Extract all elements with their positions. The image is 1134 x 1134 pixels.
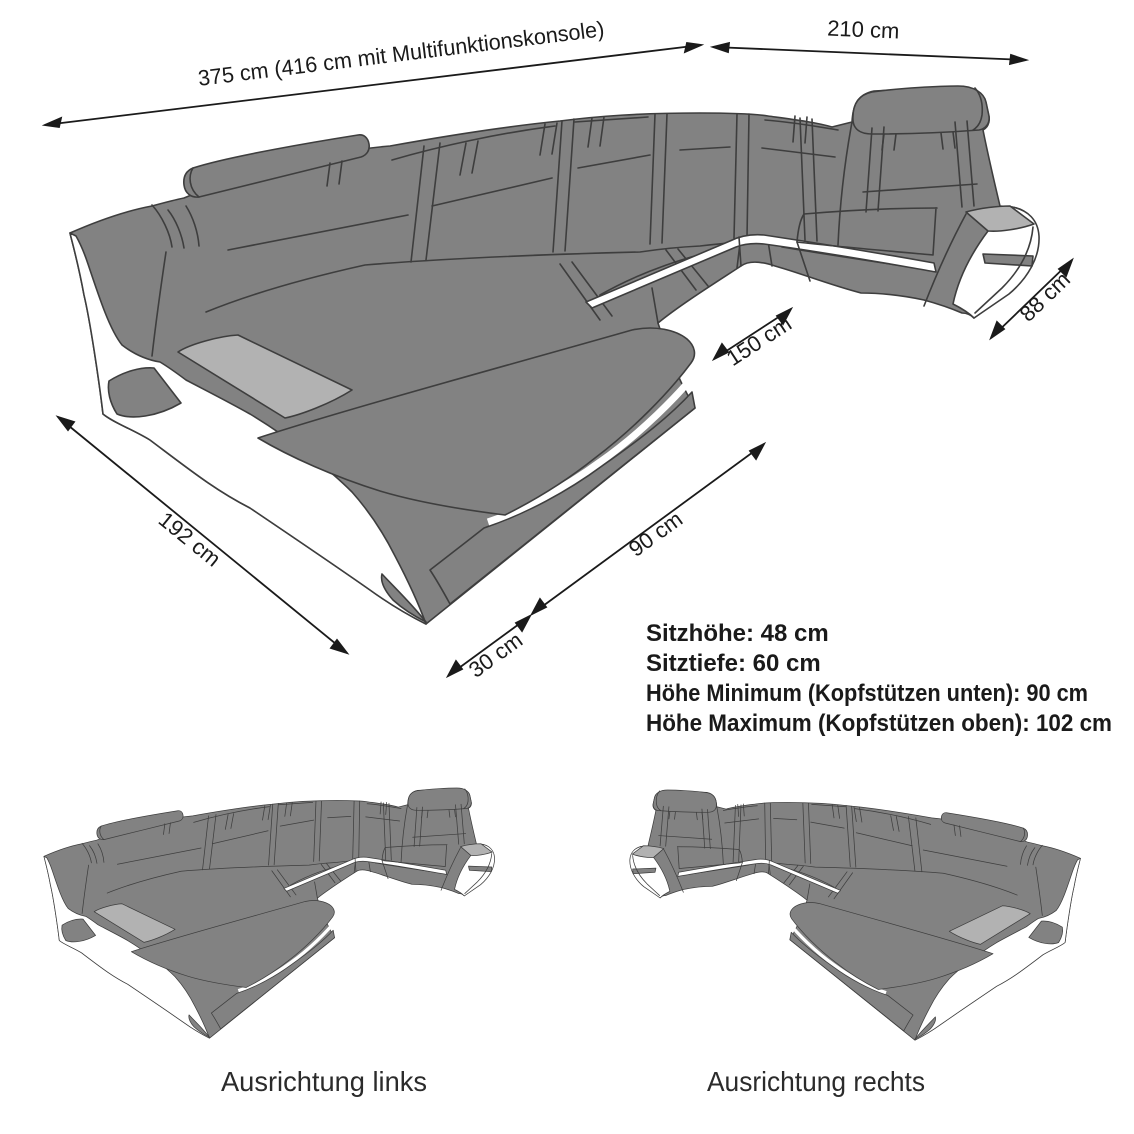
svg-text:Ausrichtung rechts: Ausrichtung rechts	[707, 1066, 925, 1097]
svg-text:150 cm: 150 cm	[722, 311, 796, 371]
svg-text:Höhe Minimum (Kopfstützen unte: Höhe Minimum (Kopfstützen unten): 90 cm	[646, 680, 1088, 707]
svg-text:210 cm: 210 cm	[827, 16, 900, 44]
svg-text:192 cm: 192 cm	[154, 507, 226, 572]
svg-text:30 cm: 30 cm	[464, 627, 527, 682]
svg-text:90 cm: 90 cm	[624, 506, 687, 561]
svg-text:Sitzhöhe: 48 cm: Sitzhöhe: 48 cm	[646, 620, 829, 647]
svg-text:Sitztiefe: 60 cm: Sitztiefe: 60 cm	[646, 650, 821, 677]
svg-text:375 cm (416 cm mit Multifunkti: 375 cm (416 cm mit Multifunktionskonsole…	[197, 16, 606, 91]
svg-text:Ausrichtung links: Ausrichtung links	[221, 1066, 427, 1097]
svg-text:Höhe Maximum (Kopfstützen oben: Höhe Maximum (Kopfstützen oben): 102 cm	[646, 710, 1112, 737]
